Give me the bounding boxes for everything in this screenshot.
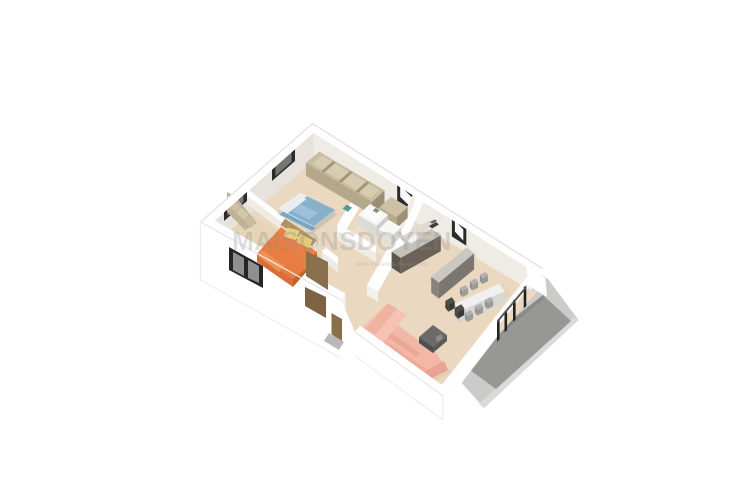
svg-text:www.maisons-doyen.com: www.maisons-doyen.com <box>354 261 429 268</box>
svg-text:MAISONSDOYEN: MAISONSDOYEN <box>232 226 452 256</box>
